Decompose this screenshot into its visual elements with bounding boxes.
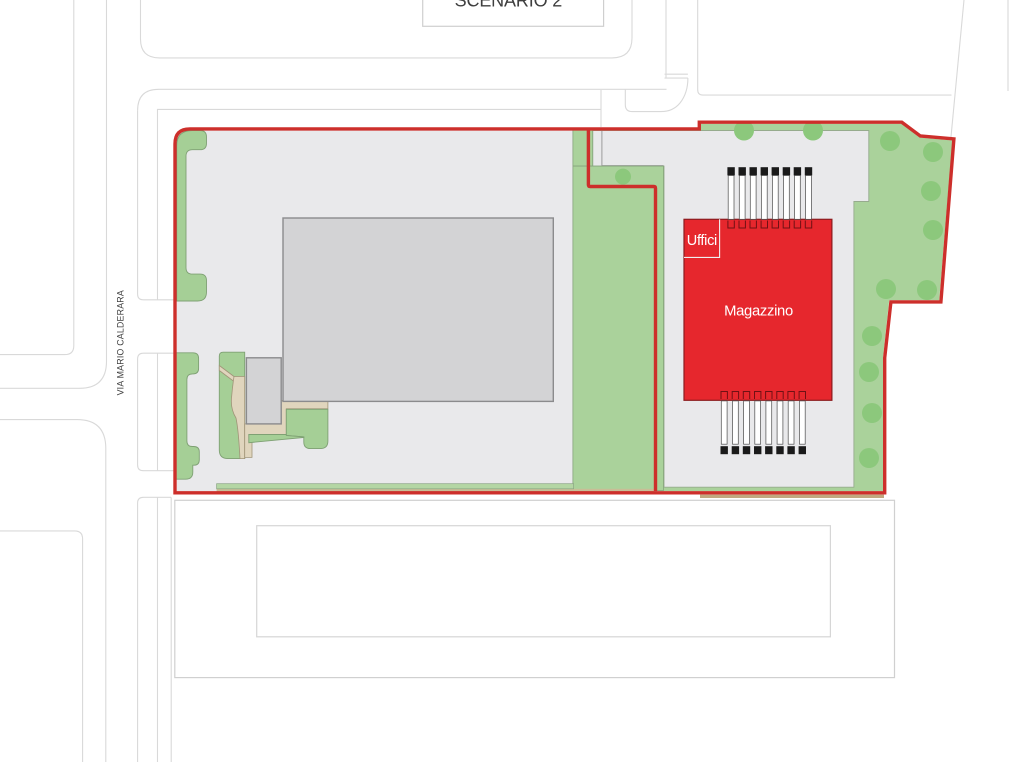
svg-text:Magazzino: Magazzino <box>724 304 793 320</box>
svg-text:Uffici: Uffici <box>687 233 717 249</box>
svg-text:SCENARIO 2: SCENARIO 2 <box>455 0 563 11</box>
svg-text:VIA MARIO CALDERARA: VIA MARIO CALDERARA <box>116 290 126 395</box>
